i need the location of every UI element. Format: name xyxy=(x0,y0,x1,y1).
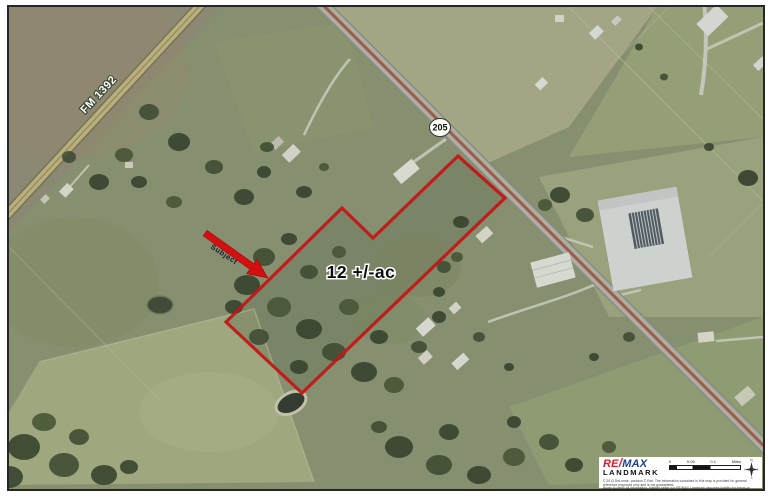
highway-205-label: 205 xyxy=(432,123,447,133)
compass-west-label: W xyxy=(744,468,747,472)
disclaimer-text: © 2013 DeLorme, portions © Esri. The inf… xyxy=(603,480,759,491)
info-box: RE/MAX LANDMARK 0 0.05 0.1 Miles N xyxy=(599,457,762,488)
aerial-map-page: Subject FM 1392 205 12 +/-ac RE/MAX LAND… xyxy=(0,0,772,500)
acreage-label: 12 +/-ac xyxy=(327,262,396,282)
scale-bar-line xyxy=(669,465,741,470)
compass-south-label: S xyxy=(751,476,753,479)
scale-zero: 0 xyxy=(669,460,671,464)
compass-east-label: E xyxy=(757,468,759,472)
compass-rose-icon: N W E S xyxy=(744,458,759,479)
scale-mid: 0.05 xyxy=(687,460,695,464)
highway-205-badge: 205 xyxy=(430,119,451,137)
scale-unit: Miles xyxy=(732,460,741,464)
scale-labels: 0 0.05 0.1 Miles xyxy=(669,460,741,464)
map-frame: Subject FM 1392 205 12 +/-ac RE/MAX LAND… xyxy=(7,5,765,491)
aerial-imagery: Subject FM 1392 205 12 +/-ac xyxy=(9,7,763,489)
brokerage-name: LANDMARK xyxy=(603,469,665,477)
compass-north-label: N xyxy=(750,458,753,462)
scale-end: 0.1 xyxy=(710,460,716,464)
scale-bar: 0 0.05 0.1 Miles xyxy=(665,458,744,470)
terrain-noise xyxy=(9,7,763,489)
disclaimer-line-2: Buyer to verify all information. Neither… xyxy=(603,486,750,491)
remax-logo: RE/MAX LANDMARK xyxy=(603,458,665,477)
